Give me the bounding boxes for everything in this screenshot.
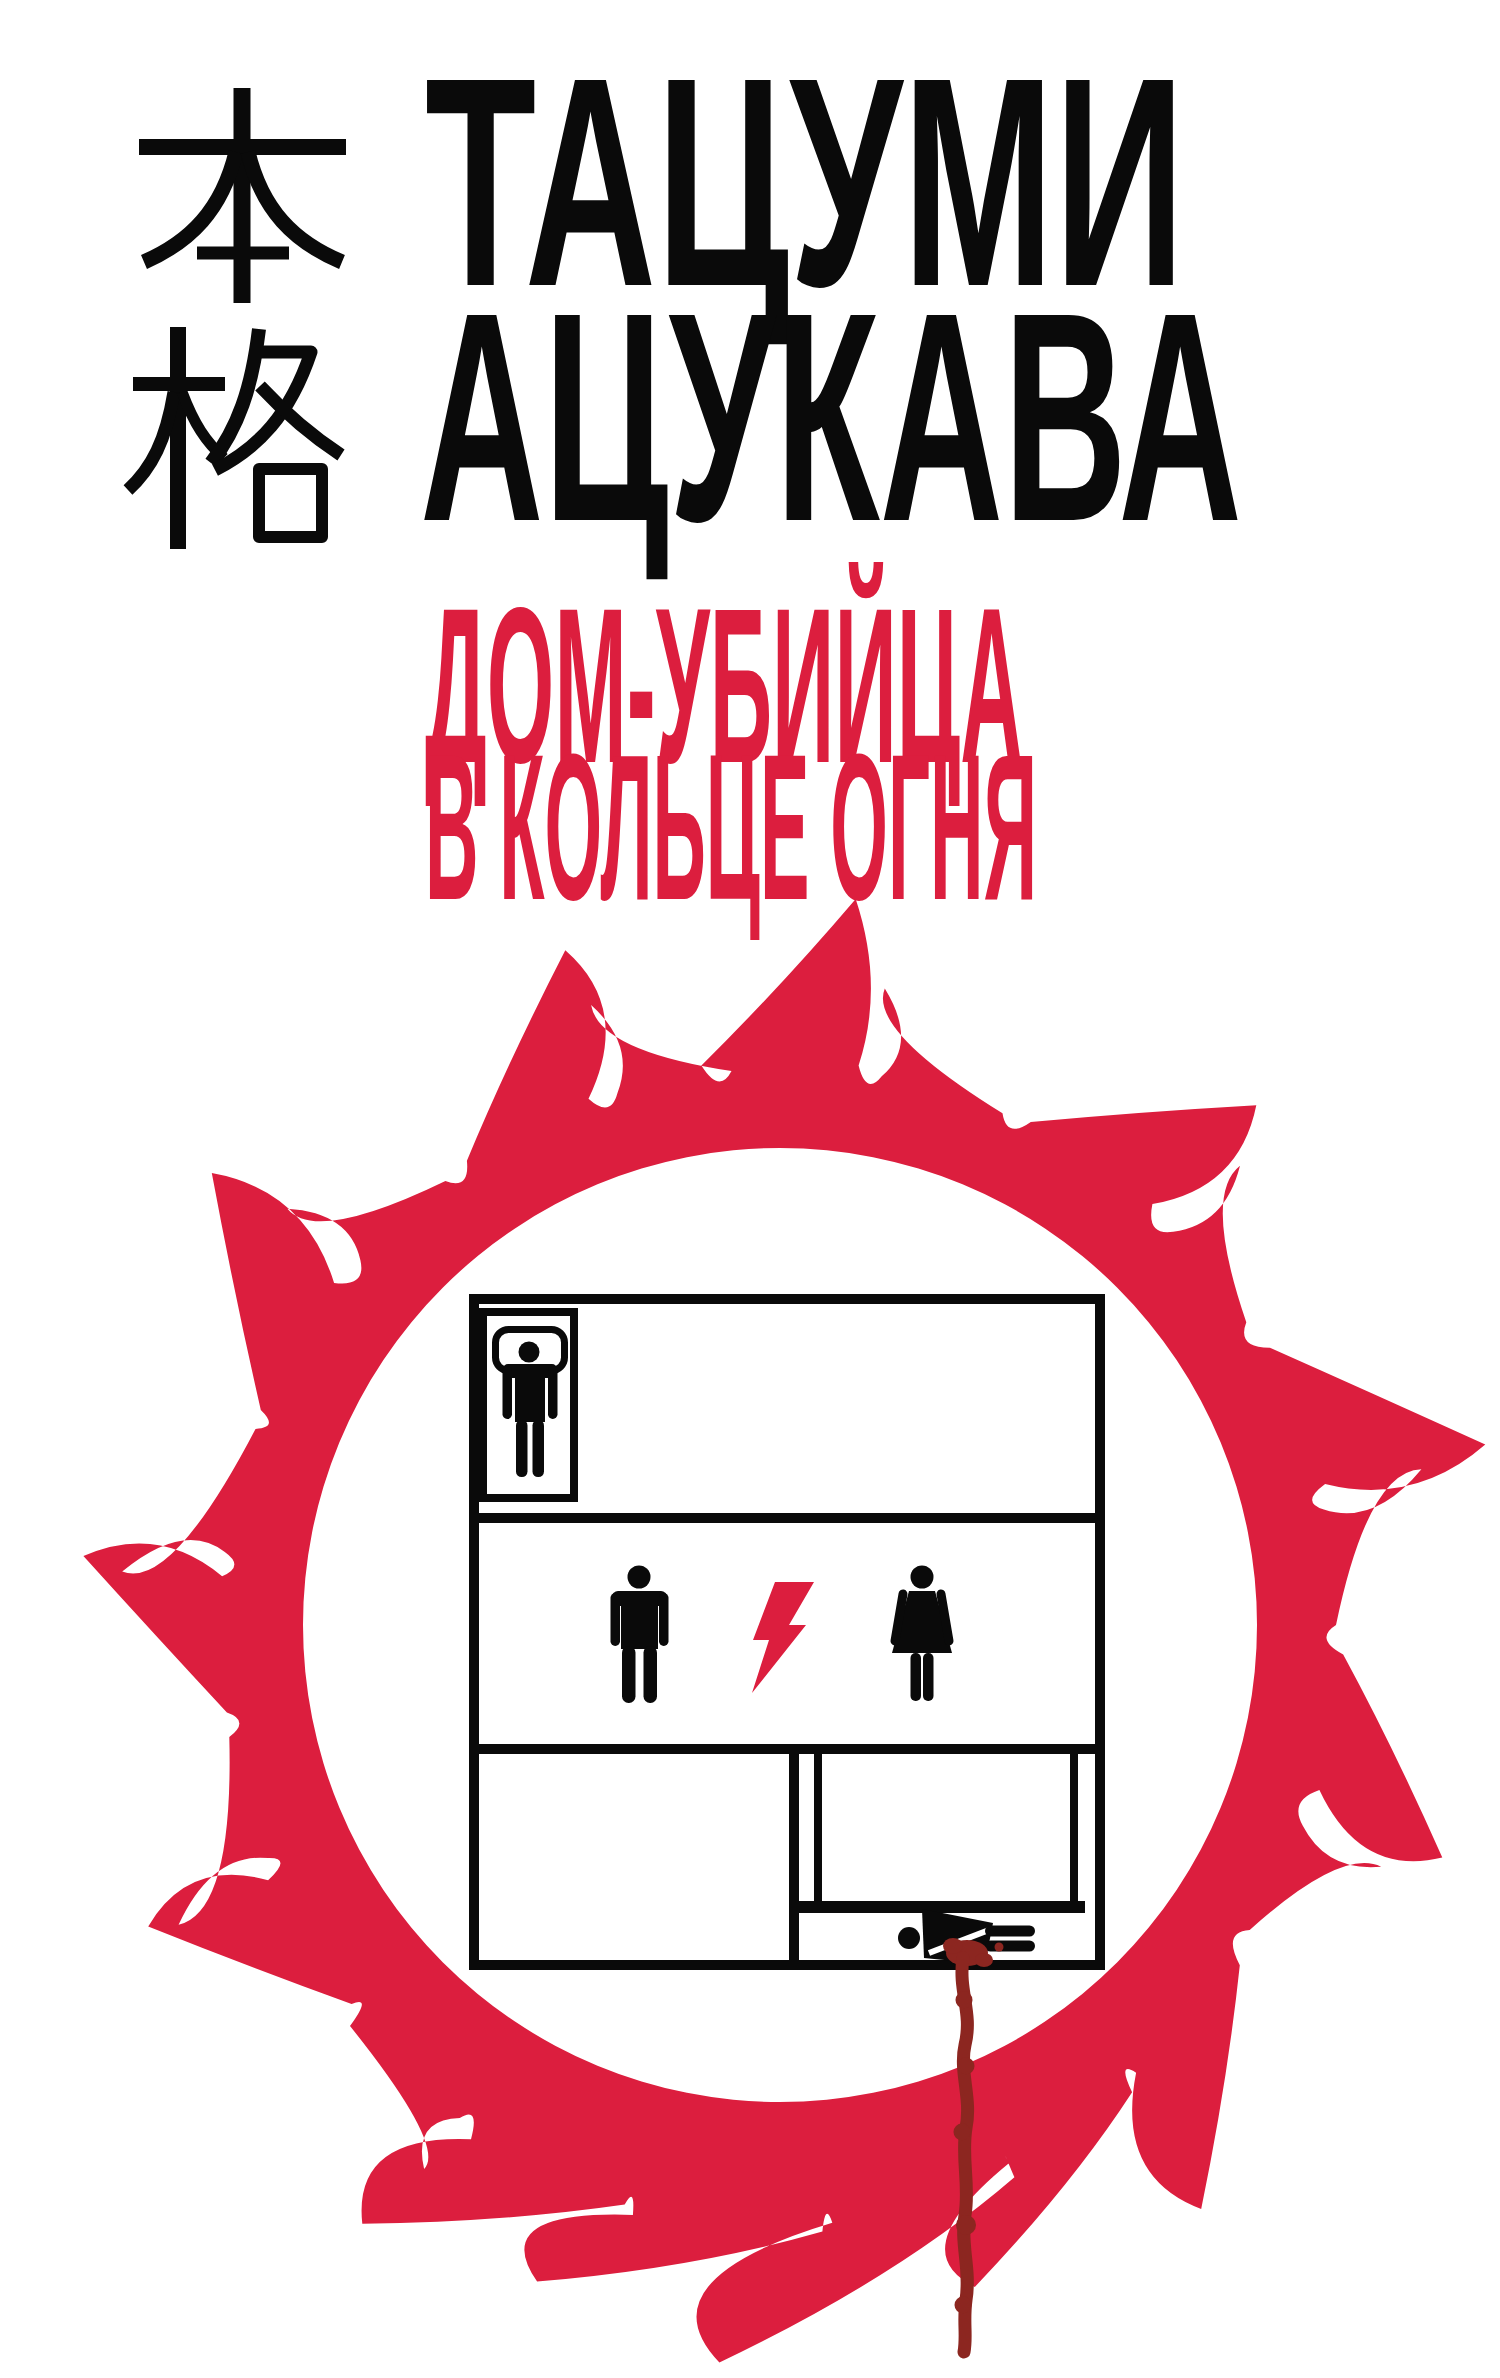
book-title-line2: В КОЛЬЦЕ ОГНЯ: [425, 711, 1037, 943]
book-cover: ТАЦУМИ АЦУКАВА ДОМ-УБИЙЦА В КОЛЬЦЕ ОГНЯ: [0, 0, 1500, 2378]
blood-drip-stream: [962, 1958, 968, 2352]
kanji-hon-icon: [139, 88, 346, 303]
author-name-line2: АЦУКАВА: [420, 250, 1242, 583]
kanji-kaku-icon: [128, 327, 341, 549]
door-bar: [798, 1901, 1085, 1913]
